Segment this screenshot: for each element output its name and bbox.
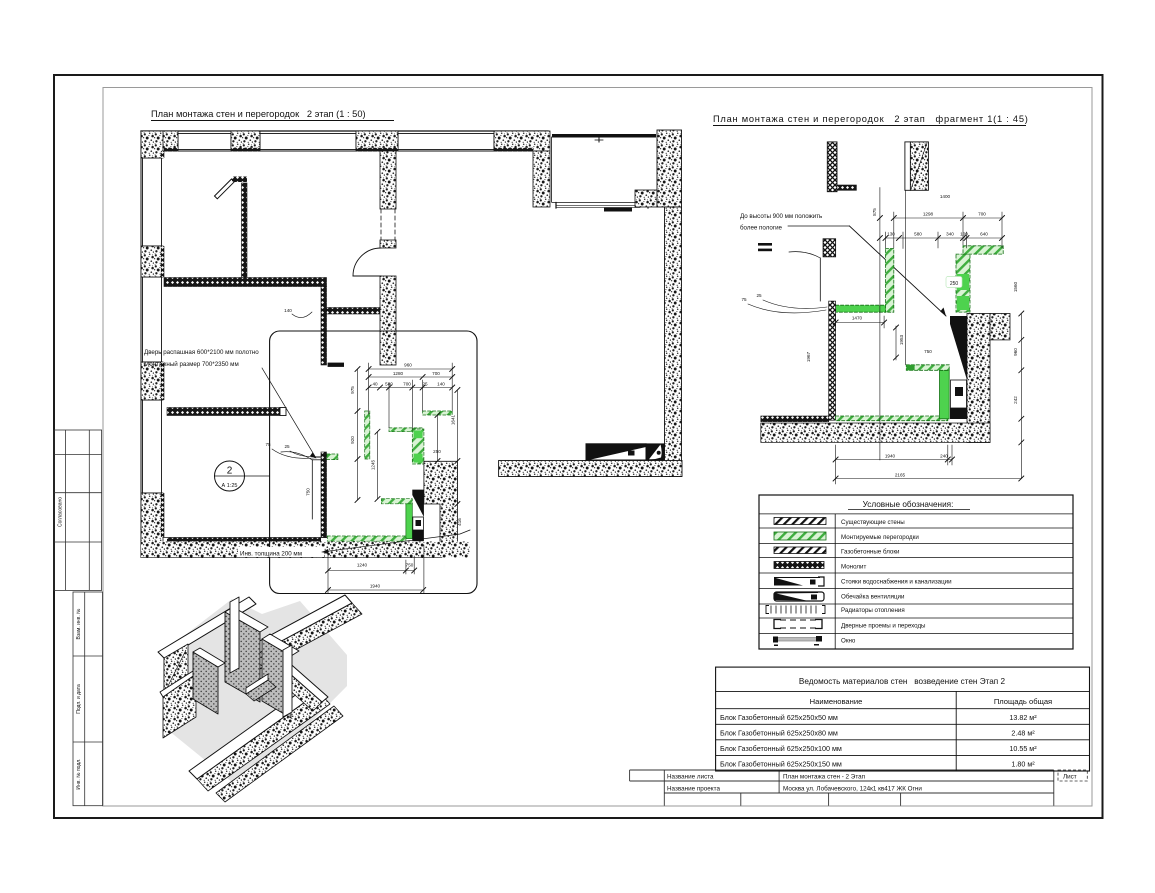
svg-text:700: 700 xyxy=(978,212,986,217)
svg-text:Наименование: Наименование xyxy=(810,697,863,706)
svg-text:Существующие стены: Существующие стены xyxy=(841,519,905,526)
svg-text:1.80 м²: 1.80 м² xyxy=(1011,760,1035,769)
svg-text:более пологие: более пологие xyxy=(740,225,783,232)
svg-text:416: 416 xyxy=(457,518,462,526)
svg-text:До высоты 900 мм положить: До высоты 900 мм положить xyxy=(740,213,822,220)
svg-text:875: 875 xyxy=(872,208,877,216)
svg-text:Блок Газобетонный 625х250х80 м: Блок Газобетонный 625х250х80 мм xyxy=(720,729,838,738)
svg-text:250: 250 xyxy=(950,281,959,287)
svg-text:Название листа: Название листа xyxy=(667,774,714,781)
svg-text:А 1:25: А 1:25 xyxy=(222,483,238,489)
svg-text:Взам. инв. №: Взам. инв. № xyxy=(76,609,82,640)
svg-text:140: 140 xyxy=(284,308,292,313)
svg-text:План монтажа стен - 2 Этап: План монтажа стен - 2 Этап xyxy=(783,774,865,781)
svg-text:Дверные проемы и переходы: Дверные проемы и переходы xyxy=(841,623,926,630)
svg-text:960: 960 xyxy=(1013,348,1018,356)
svg-text:10.55 м²: 10.55 м² xyxy=(1009,744,1037,753)
svg-text:1641: 1641 xyxy=(450,414,455,425)
svg-text:Площадь общая: Площадь общая xyxy=(994,697,1052,706)
svg-text:975: 975 xyxy=(350,386,355,394)
svg-text:Блок Газобетонный 625х250х50 м: Блок Газобетонный 625х250х50 мм xyxy=(720,713,838,722)
svg-text:1470: 1470 xyxy=(852,316,863,321)
svg-text:1245: 1245 xyxy=(371,459,376,470)
svg-text:1298: 1298 xyxy=(923,212,934,217)
svg-text:13.82 м²: 13.82 м² xyxy=(1009,713,1037,722)
svg-text:1280: 1280 xyxy=(393,371,404,376)
svg-text:Ведомость материалов стен во: Ведомость материалов стен возведение сте… xyxy=(799,677,1006,686)
svg-text:40: 40 xyxy=(372,382,378,387)
svg-text:1953: 1953 xyxy=(899,334,904,345)
svg-text:Стояки водоснабжения и канализ: Стояки водоснабжения и канализации xyxy=(841,579,952,586)
svg-text:План монтажа стен и перегородо: План монтажа стен и перегородок 2 этап (… xyxy=(151,109,366,119)
svg-text:Обечайка вентиляции: Обечайка вентиляции xyxy=(841,594,905,601)
svg-text:580: 580 xyxy=(914,232,922,237)
svg-text:Блок Газобетонный 625х250х100: Блок Газобетонный 625х250х100 мм xyxy=(720,744,842,753)
svg-text:700: 700 xyxy=(432,371,440,376)
svg-text:Монтажный размер 700*2350 мм: Монтажный размер 700*2350 мм xyxy=(144,361,239,368)
svg-text:Согласовано: Согласовано xyxy=(58,497,64,527)
svg-text:750: 750 xyxy=(306,488,311,496)
svg-text:242: 242 xyxy=(1013,396,1018,404)
svg-text:Монтируемые перегородки: Монтируемые перегородки xyxy=(841,534,919,541)
svg-text:920: 920 xyxy=(350,436,355,444)
svg-text:Инв. толщина 200 мм: Инв. толщина 200 мм xyxy=(240,551,302,558)
svg-text:Радиаторы отопления: Радиаторы отопления xyxy=(841,607,905,614)
svg-text:240: 240 xyxy=(940,454,948,459)
svg-text:Москва ул. Лобачевского, 124к1: Москва ул. Лобачевского, 124к1 кв417 ЖК … xyxy=(783,785,922,793)
svg-text:250: 250 xyxy=(433,449,441,454)
svg-text:640: 640 xyxy=(980,232,988,237)
svg-text:580: 580 xyxy=(385,382,393,387)
svg-text:Название проекта: Название проекта xyxy=(667,786,720,793)
svg-text:1940: 1940 xyxy=(370,584,381,589)
svg-text:План монтажа стен и перегородо: План монтажа стен и перегородок 2 этап ф… xyxy=(713,114,1029,124)
svg-text:Газобетонные блоки: Газобетонные блоки xyxy=(841,549,900,556)
svg-text:75: 75 xyxy=(741,297,747,302)
svg-text:1940: 1940 xyxy=(885,454,896,459)
svg-text:Окно: Окно xyxy=(841,638,856,645)
svg-text:750: 750 xyxy=(924,349,932,354)
svg-text:Лист: Лист xyxy=(1063,774,1077,781)
svg-text:960: 960 xyxy=(404,363,412,368)
svg-text:Дверь распашная 600*2100 мм по: Дверь распашная 600*2100 мм полотно xyxy=(144,349,259,356)
svg-text:25: 25 xyxy=(756,293,762,298)
svg-text:25: 25 xyxy=(284,444,290,449)
svg-text:Подп. и дата: Подп. и дата xyxy=(76,684,82,714)
svg-text:100: 100 xyxy=(960,232,968,237)
svg-text:Условные обозначения:: Условные обозначения: xyxy=(863,500,954,509)
svg-text:140: 140 xyxy=(437,382,445,387)
svg-text:1967: 1967 xyxy=(806,351,811,362)
svg-text:2.48 м²: 2.48 м² xyxy=(1011,729,1035,738)
svg-text:Блок Газобетонный 625х250х150: Блок Газобетонный 625х250х150 мм xyxy=(720,760,842,769)
svg-text:Монолит: Монолит xyxy=(841,564,866,571)
svg-text:700: 700 xyxy=(403,382,411,387)
svg-text:1560: 1560 xyxy=(1013,281,1018,292)
svg-text:25: 25 xyxy=(422,382,428,387)
svg-text:1400: 1400 xyxy=(940,194,951,199)
svg-text:75: 75 xyxy=(265,442,271,447)
svg-text:Инв. № подл.: Инв. № подл. xyxy=(76,758,82,789)
svg-text:340: 340 xyxy=(946,232,954,237)
svg-text:2165: 2165 xyxy=(895,473,906,478)
svg-text:1240: 1240 xyxy=(357,563,368,568)
svg-text:750: 750 xyxy=(406,563,414,568)
svg-text:2: 2 xyxy=(227,466,233,477)
